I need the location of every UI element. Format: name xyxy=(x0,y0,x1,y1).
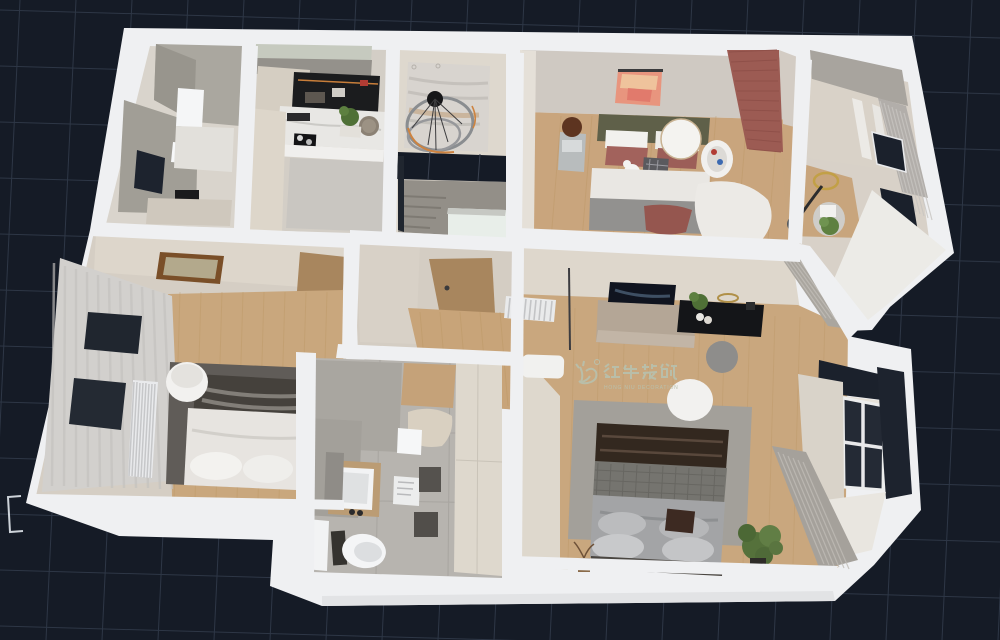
svg-text:HONG NIU DECORATION: HONG NIU DECORATION xyxy=(604,385,679,391)
